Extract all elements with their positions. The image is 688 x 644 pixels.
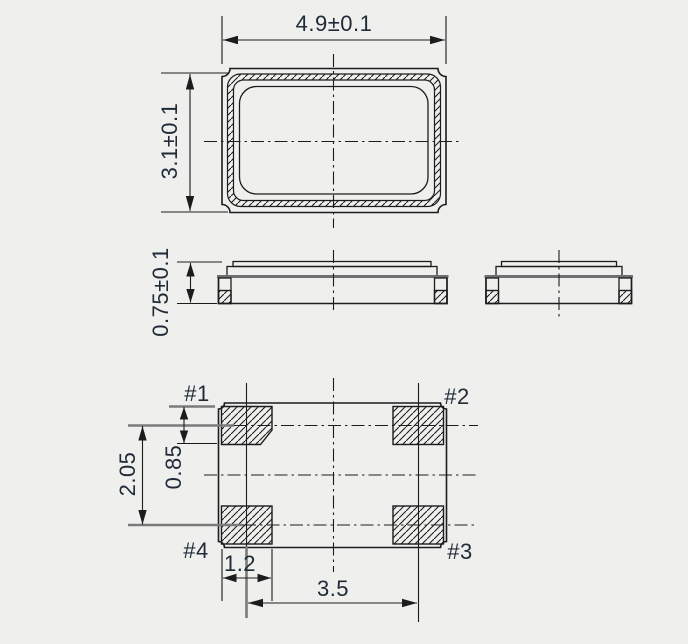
dim-label-height: 3.1±0.1 [157,103,182,180]
pad-label-2: #2 [444,384,469,409]
arrow-down-icon [186,289,194,303]
pad-label-3: #3 [447,539,472,564]
dimension-height: 3.1±0.1 [157,73,228,212]
arrow-down-icon [138,510,146,525]
arrow-up-icon [186,263,194,277]
arrow-right-icon [402,599,417,607]
arrow-up-icon [180,407,188,420]
dimension-thickness: 0.75±0.1 [148,247,222,336]
lid-top-layer [233,262,431,267]
side-view-end [485,250,634,317]
dim-label-pad-width: 1.2 [224,551,256,576]
pad-label-4: #4 [183,538,208,563]
arrow-right-icon [258,574,272,582]
dim-label-row-pitch: 2.05 [115,452,140,497]
dimension-pad-height: 0.85 [161,407,217,489]
arrow-down-icon [186,196,194,211]
dimension-row-pitch: 2.05 [115,426,147,525]
dim-label-thickness: 0.75±0.1 [148,247,173,336]
lid-seam-hatch-band [228,74,441,207]
terminal-left [219,278,232,304]
arrow-up-icon [186,75,194,90]
top-view: 4.9±0.1 3.1±0.1 [157,11,460,228]
arrow-right-icon [430,36,445,44]
dim-label-width: 4.9±0.1 [296,11,373,36]
arrow-left-icon [248,599,263,607]
bottom-view-land-pattern: 2.05 0.85 1.2 3.5 #1 #2 #3 [115,378,478,622]
terminal-left [486,278,499,304]
side-view-front: 0.75±0.1 [148,247,449,336]
arrow-down-icon [180,431,188,444]
terminal-right [619,278,632,304]
body-outline [219,278,448,304]
pad-label-1: #1 [184,381,209,406]
terminal-right [435,278,448,304]
technical-drawing-canvas: 4.9±0.1 3.1±0.1 [0,0,688,644]
dimension-column-pitch: 3.5 [248,576,417,607]
dim-label-column-pitch: 3.5 [317,576,349,601]
arrow-left-icon [223,36,238,44]
arrow-up-icon [138,426,146,441]
dim-label-pad-height: 0.85 [161,445,186,490]
